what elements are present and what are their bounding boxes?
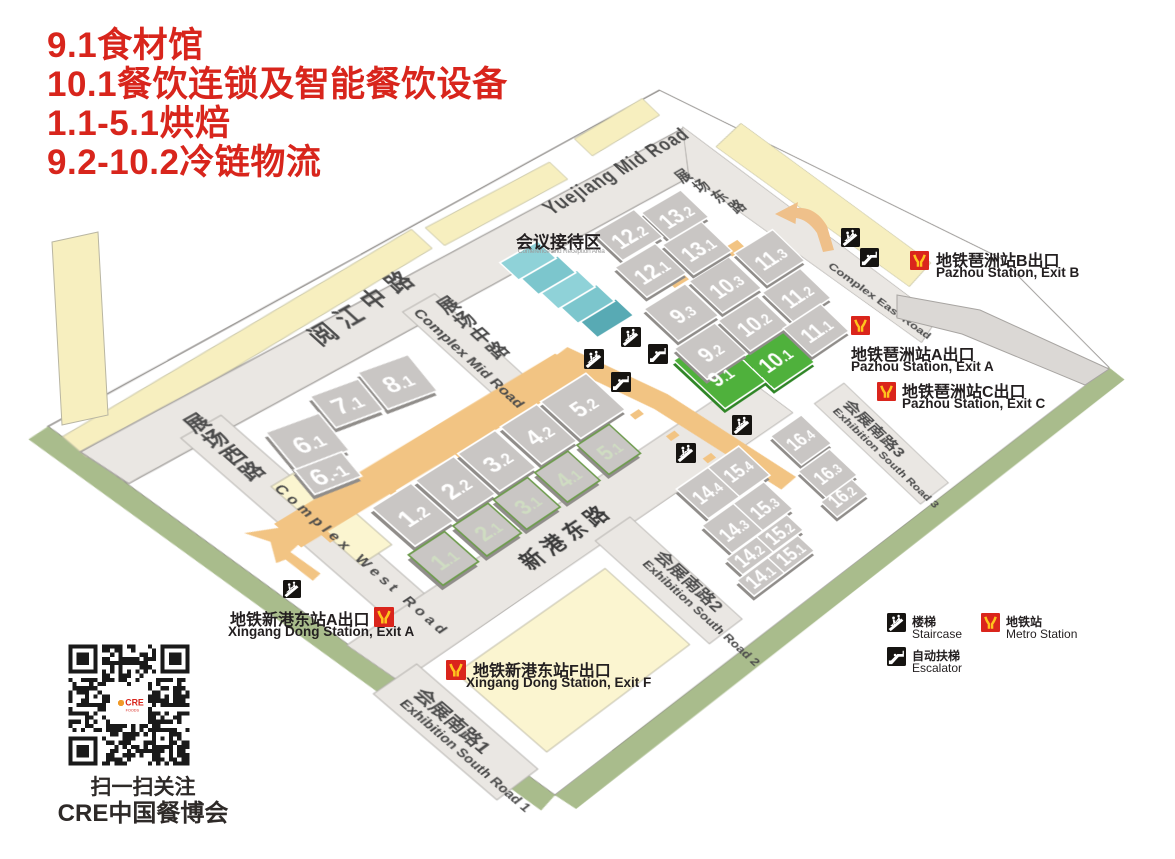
svg-text:FOODS: FOODS: [126, 708, 140, 712]
svg-text:CRE: CRE: [125, 697, 144, 707]
